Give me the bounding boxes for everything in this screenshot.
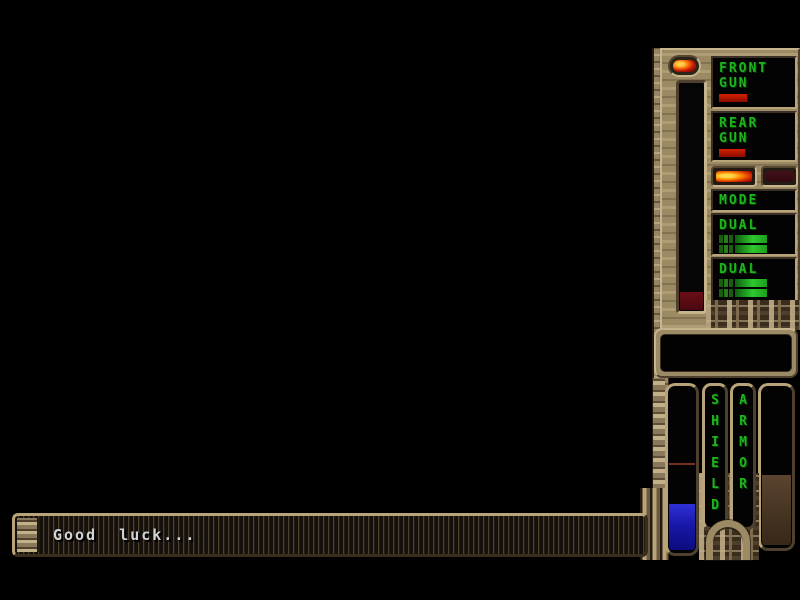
bar-segment (724, 235, 728, 243)
mode-label: MODE (713, 191, 795, 208)
bar-segment (719, 245, 723, 253)
dual-weapon-display-top: DUAL (711, 213, 797, 256)
pipe-arch-icon (706, 520, 750, 560)
bar-segment (729, 279, 733, 287)
bar-segment (719, 289, 723, 297)
dual-bottom-bar1-fill (735, 279, 767, 287)
shield-gauge (665, 383, 699, 556)
mode-lights-row (711, 164, 798, 189)
bar-segment (724, 289, 728, 297)
message-bar-end-cap (17, 518, 39, 552)
bar-segment (719, 235, 723, 243)
mode-display: MODE (711, 189, 797, 212)
bar-segment (724, 279, 728, 287)
front-gun-power-bar (719, 94, 748, 102)
generator-gauge-fill (680, 292, 703, 310)
bar-segment (724, 245, 728, 253)
mode-light-on-icon (716, 171, 752, 182)
mode-light-off-icon (766, 171, 793, 182)
dual-top-bar-2 (719, 245, 795, 253)
front-gun-display: FRONT GUN (711, 56, 797, 109)
front-gun-label: FRONT GUN (713, 58, 795, 91)
dual-bottom-label: DUAL (713, 259, 795, 277)
playfield[interactable] (0, 0, 652, 600)
mode-light-left-bezel (711, 166, 757, 187)
message-bar: Good luck... (12, 513, 648, 557)
bar-segment (729, 289, 733, 297)
armor-label-column: A R M O R (730, 383, 756, 530)
rear-gun-label: REAR GUN (713, 113, 795, 146)
bar-segment (729, 245, 733, 253)
armor-gauge-fill (762, 475, 791, 545)
shield-label: S H I E L D (705, 386, 725, 516)
dual-weapon-display-bottom: DUAL (711, 257, 797, 302)
rear-gun-power-bar (719, 149, 746, 157)
dual-top-label: DUAL (713, 215, 795, 233)
mode-light-right-bezel (761, 166, 798, 187)
power-led-bezel (668, 55, 701, 77)
weapon-screens: FRONT GUN REAR GUN MODE (711, 50, 798, 332)
data-display-frame (654, 328, 798, 378)
shield-marker-line (669, 463, 695, 465)
rear-gun-display: REAR GUN (711, 111, 797, 162)
generator-gauge (676, 80, 707, 314)
dual-bottom-bar2-fill (735, 289, 767, 297)
shield-label-column: S H I E L D (702, 383, 728, 530)
dual-top-bar-1 (719, 235, 795, 243)
armor-gauge (758, 383, 795, 551)
power-led-icon (673, 60, 696, 72)
data-display (660, 334, 792, 372)
armor-label: A R M O R (733, 386, 753, 495)
armor-gauge-inner (762, 387, 791, 547)
bar-segment (719, 279, 723, 287)
circuit-greeble (706, 300, 800, 330)
dual-top-bar1-fill (735, 235, 767, 243)
dual-bottom-bar-2 (719, 289, 795, 297)
bar-segment (729, 235, 733, 243)
game-screen: FRONT GUN REAR GUN MODE (0, 0, 800, 600)
shield-gauge-inner (669, 387, 695, 552)
hud-panel: FRONT GUN REAR GUN MODE (652, 48, 800, 560)
dual-bottom-bar-1 (719, 279, 795, 287)
weapons-panel: FRONT GUN REAR GUN MODE (660, 48, 800, 330)
message-text: Good luck... (53, 526, 196, 544)
shield-gauge-fill (669, 504, 695, 550)
dual-top-bar2-fill (735, 245, 767, 253)
